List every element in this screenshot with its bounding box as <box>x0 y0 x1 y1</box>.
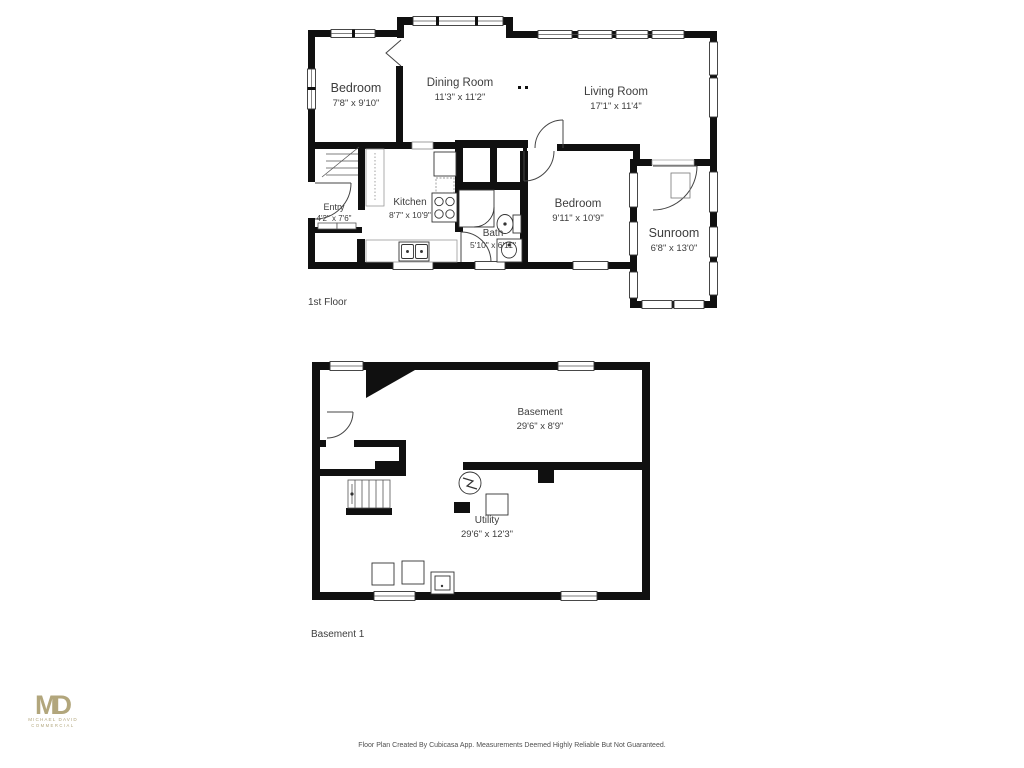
stairs-down <box>348 480 390 508</box>
window <box>642 301 672 309</box>
wall-segment <box>396 66 403 149</box>
kitchen-sink-icon <box>399 242 429 261</box>
basement-plan: Basement 29'6" x 8'9" Utility 29'6" x 12… <box>311 362 650 641</box>
first-floor-plan: Bedroom 7'8" x 9'10" Dining Room 11'3" x… <box>308 17 718 309</box>
floor-plan-canvas: Bedroom 7'8" x 9'10" Dining Room 11'3" x… <box>0 0 1024 768</box>
room-label-dining-room: Dining Room <box>427 77 493 89</box>
room-label-bedroom-2: Bedroom <box>555 198 602 210</box>
wall-segment <box>463 462 643 470</box>
window <box>674 301 704 309</box>
wall-segment <box>308 218 315 269</box>
wall-segment <box>312 440 326 447</box>
room-dims-bedroom-1: 7'8" x 9'10" <box>333 98 380 109</box>
wall-segment <box>358 149 365 210</box>
window <box>710 78 718 117</box>
room-label-living-room: Living Room <box>584 86 648 98</box>
electrical-panel-icon <box>459 472 481 494</box>
opening-threshold <box>412 142 433 149</box>
stairs-base-wall <box>346 508 392 515</box>
wall-segment <box>403 142 412 149</box>
window <box>630 222 638 255</box>
wall-segment <box>308 142 403 149</box>
stairs-up <box>322 147 359 177</box>
room-dims-entry: 4'2" x 7'6" <box>317 214 352 223</box>
water-heater-icon <box>431 572 454 594</box>
room-label-kitchen: Kitchen <box>393 197 426 208</box>
dishwasher-icon <box>436 178 454 193</box>
window <box>710 172 718 212</box>
wall-segment <box>538 470 554 483</box>
logo-company-name: MICHAEL DAVID <box>28 717 78 722</box>
window-divider <box>352 30 355 38</box>
wall-segment <box>557 144 640 151</box>
basement-doors <box>327 412 353 438</box>
wall-segment <box>312 592 650 600</box>
room-dims-basement: 29'6" x 8'9" <box>517 421 564 432</box>
room-dims-kitchen: 8'7" x 10'9" <box>389 210 431 220</box>
door-leaf <box>386 40 401 66</box>
window <box>630 272 638 298</box>
wall-column <box>525 86 528 89</box>
wall-segment <box>375 461 406 476</box>
window <box>710 227 718 257</box>
window-divider <box>308 87 316 90</box>
window <box>630 173 638 207</box>
room-dims-bedroom-2: 9'11" x 10'9" <box>552 213 603 224</box>
room-dims-living-room: 17'1" x 11'4" <box>590 101 641 112</box>
floor-plan-page: Bedroom 7'8" x 9'10" Dining Room 11'3" x… <box>0 0 1024 768</box>
footer-disclaimer: Floor Plan Created By Cubicasa App. Meas… <box>358 742 665 749</box>
wall-column <box>518 86 521 89</box>
logo-company-tagline: COMMERCIAL <box>31 723 74 728</box>
door-arc <box>524 151 554 181</box>
window <box>475 262 505 270</box>
room-dims-bath: 5'10" x 6'11" <box>470 240 516 250</box>
refrigerator-icon <box>434 152 456 176</box>
wall-segment <box>354 440 406 447</box>
window <box>710 262 718 295</box>
storage-box <box>372 563 394 585</box>
room-dims-sunroom: 6'8" x 13'0" <box>651 243 698 254</box>
room-label-bedroom-1: Bedroom <box>331 81 382 95</box>
opening-threshold <box>652 160 694 165</box>
wall-segment <box>433 142 456 149</box>
wall-segment <box>312 362 320 600</box>
tall-cabinet-icon <box>366 149 384 206</box>
room-label-sunroom: Sunroom <box>649 226 700 240</box>
shower-icon <box>459 190 494 227</box>
door-arc <box>327 412 353 438</box>
stove-icon <box>432 193 457 222</box>
wall-segment <box>694 159 717 166</box>
wall-segment <box>490 140 497 188</box>
room-label-entry: Entry <box>323 202 345 212</box>
storage-box <box>486 494 508 515</box>
floor-label-first-floor: 1st Floor <box>308 297 348 308</box>
room-dims-utility: 29'6" x 12'3" <box>461 529 513 540</box>
room-label-basement: Basement <box>517 407 562 418</box>
room-label-utility: Utility <box>475 515 499 526</box>
room-label-bath: Bath <box>483 228 504 239</box>
company-logo: MD MICHAEL DAVID COMMERCIAL <box>28 690 78 728</box>
window-divider <box>436 17 439 26</box>
window <box>393 262 433 270</box>
door-arc <box>535 120 563 148</box>
wall-segment <box>357 239 365 269</box>
chimney <box>366 370 415 398</box>
floor-label-basement: Basement 1 <box>311 629 365 640</box>
window <box>573 262 608 270</box>
wall-segment <box>642 362 650 600</box>
window-divider <box>475 17 478 26</box>
storage-box <box>402 561 424 584</box>
window <box>710 42 718 75</box>
utility-block <box>454 502 470 513</box>
closet-door-panel <box>337 223 356 229</box>
room-dims-dining-room: 11'3" x 11'2" <box>435 92 486 103</box>
logo-monogram-icon: MD <box>35 690 71 720</box>
closet-door-panel <box>318 223 337 229</box>
